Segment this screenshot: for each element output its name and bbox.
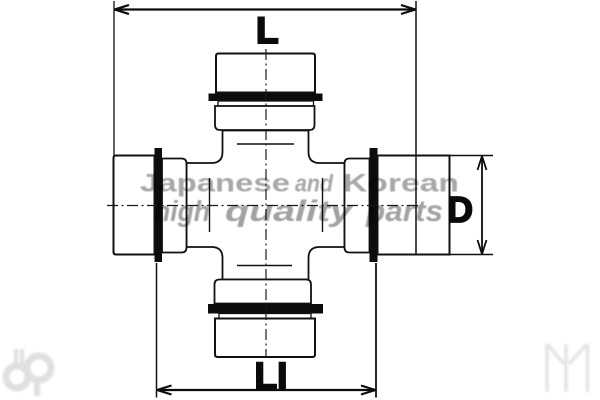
svg-text:parts: parts (365, 195, 443, 228)
svg-text:and: and (295, 171, 334, 198)
svg-text:Korean: Korean (343, 170, 459, 198)
svg-text:high: high (154, 196, 210, 228)
svg-text:L: L (256, 10, 279, 51)
svg-text:quality: quality (225, 195, 354, 228)
svg-text:Japanese: Japanese (140, 170, 290, 198)
svg-text:LI: LI (255, 356, 288, 398)
